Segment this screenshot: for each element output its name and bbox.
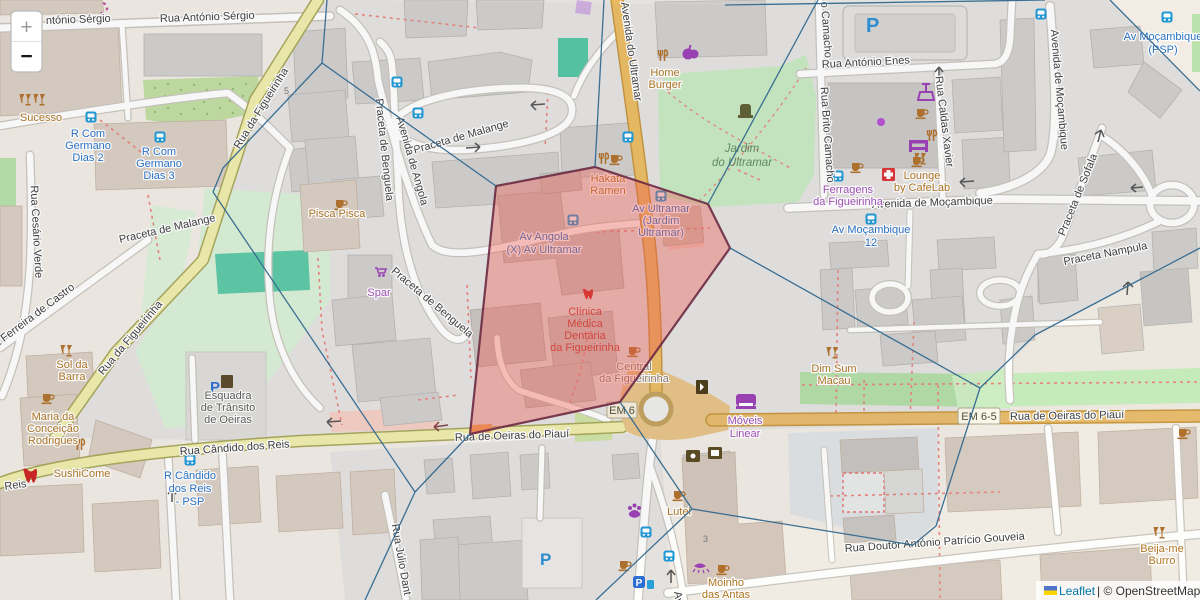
svg-text:Beija-me: Beija-me	[1140, 543, 1183, 555]
svg-text:+: +	[20, 16, 32, 39]
svg-text:Moinho: Moinho	[708, 577, 744, 589]
svg-text:| © OpenStreetMap: | © OpenStreetMap	[1097, 584, 1200, 598]
svg-text:Burro: Burro	[1149, 555, 1176, 567]
svg-text:−: −	[20, 45, 32, 68]
svg-text:Rua de Oeiras do Piauí: Rua de Oeiras do Piauí	[1010, 409, 1125, 423]
svg-text:Leaflet: Leaflet	[1059, 584, 1096, 598]
svg-text:das Antas: das Antas	[702, 589, 751, 600]
svg-text:3: 3	[703, 534, 708, 544]
